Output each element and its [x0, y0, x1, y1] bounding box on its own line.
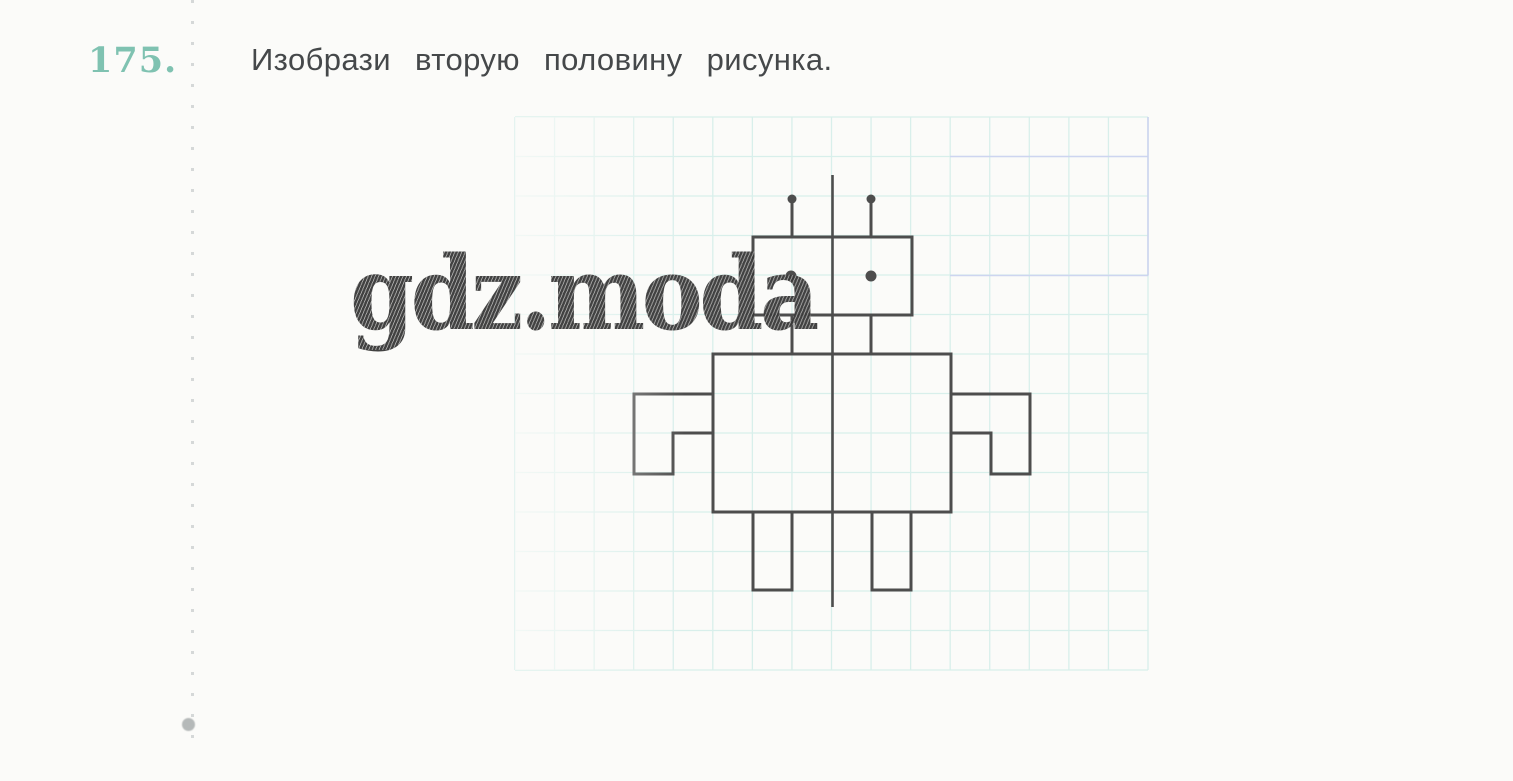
- workbook-page: 175. Изобрази вторую половину рисунка. g…: [0, 0, 1513, 781]
- robot-antenna-tip-right: [867, 195, 876, 204]
- robot-antenna-tip-left: [788, 195, 797, 204]
- robot-arm-right: [951, 394, 1030, 474]
- robot-grid-figure: [0, 0, 1513, 781]
- robot-eye-right: [866, 271, 877, 282]
- watermark-hatch-overlay: gdz.moda: [350, 238, 816, 350]
